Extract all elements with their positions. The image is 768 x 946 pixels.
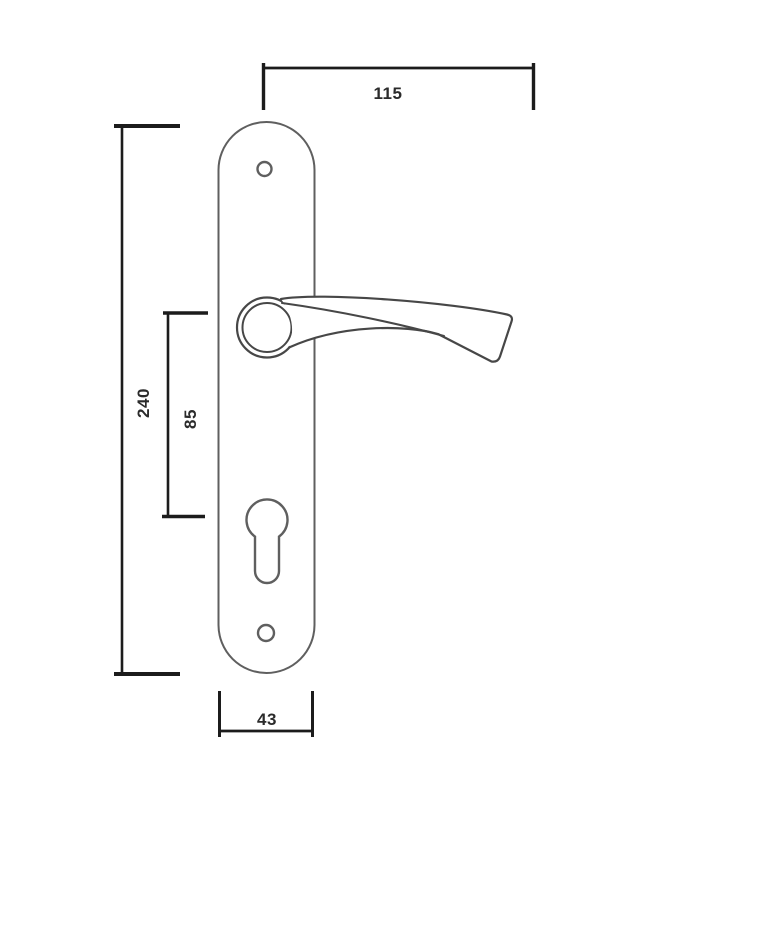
dimension-label-43: 43 [257,710,277,729]
dimension-handle-to-cylinder: 85 [162,313,208,517]
dimension-label-115: 115 [374,84,403,103]
dimension-label-240: 240 [134,388,153,418]
handle-group [237,297,512,362]
technical-drawing-canvas: 115 240 85 43 [0,0,768,946]
dimension-plate-width: 43 [219,691,313,737]
backplate [219,122,315,673]
screw-hole-bottom [258,625,274,641]
dimension-label-85: 85 [181,409,200,429]
dimension-plate-height: 240 [114,125,180,674]
screw-hole-top [258,162,272,176]
dimension-handle-length: 115 [263,63,534,110]
backplate-group [219,122,315,673]
door-handle-drawing: 115 240 85 43 [0,0,768,946]
